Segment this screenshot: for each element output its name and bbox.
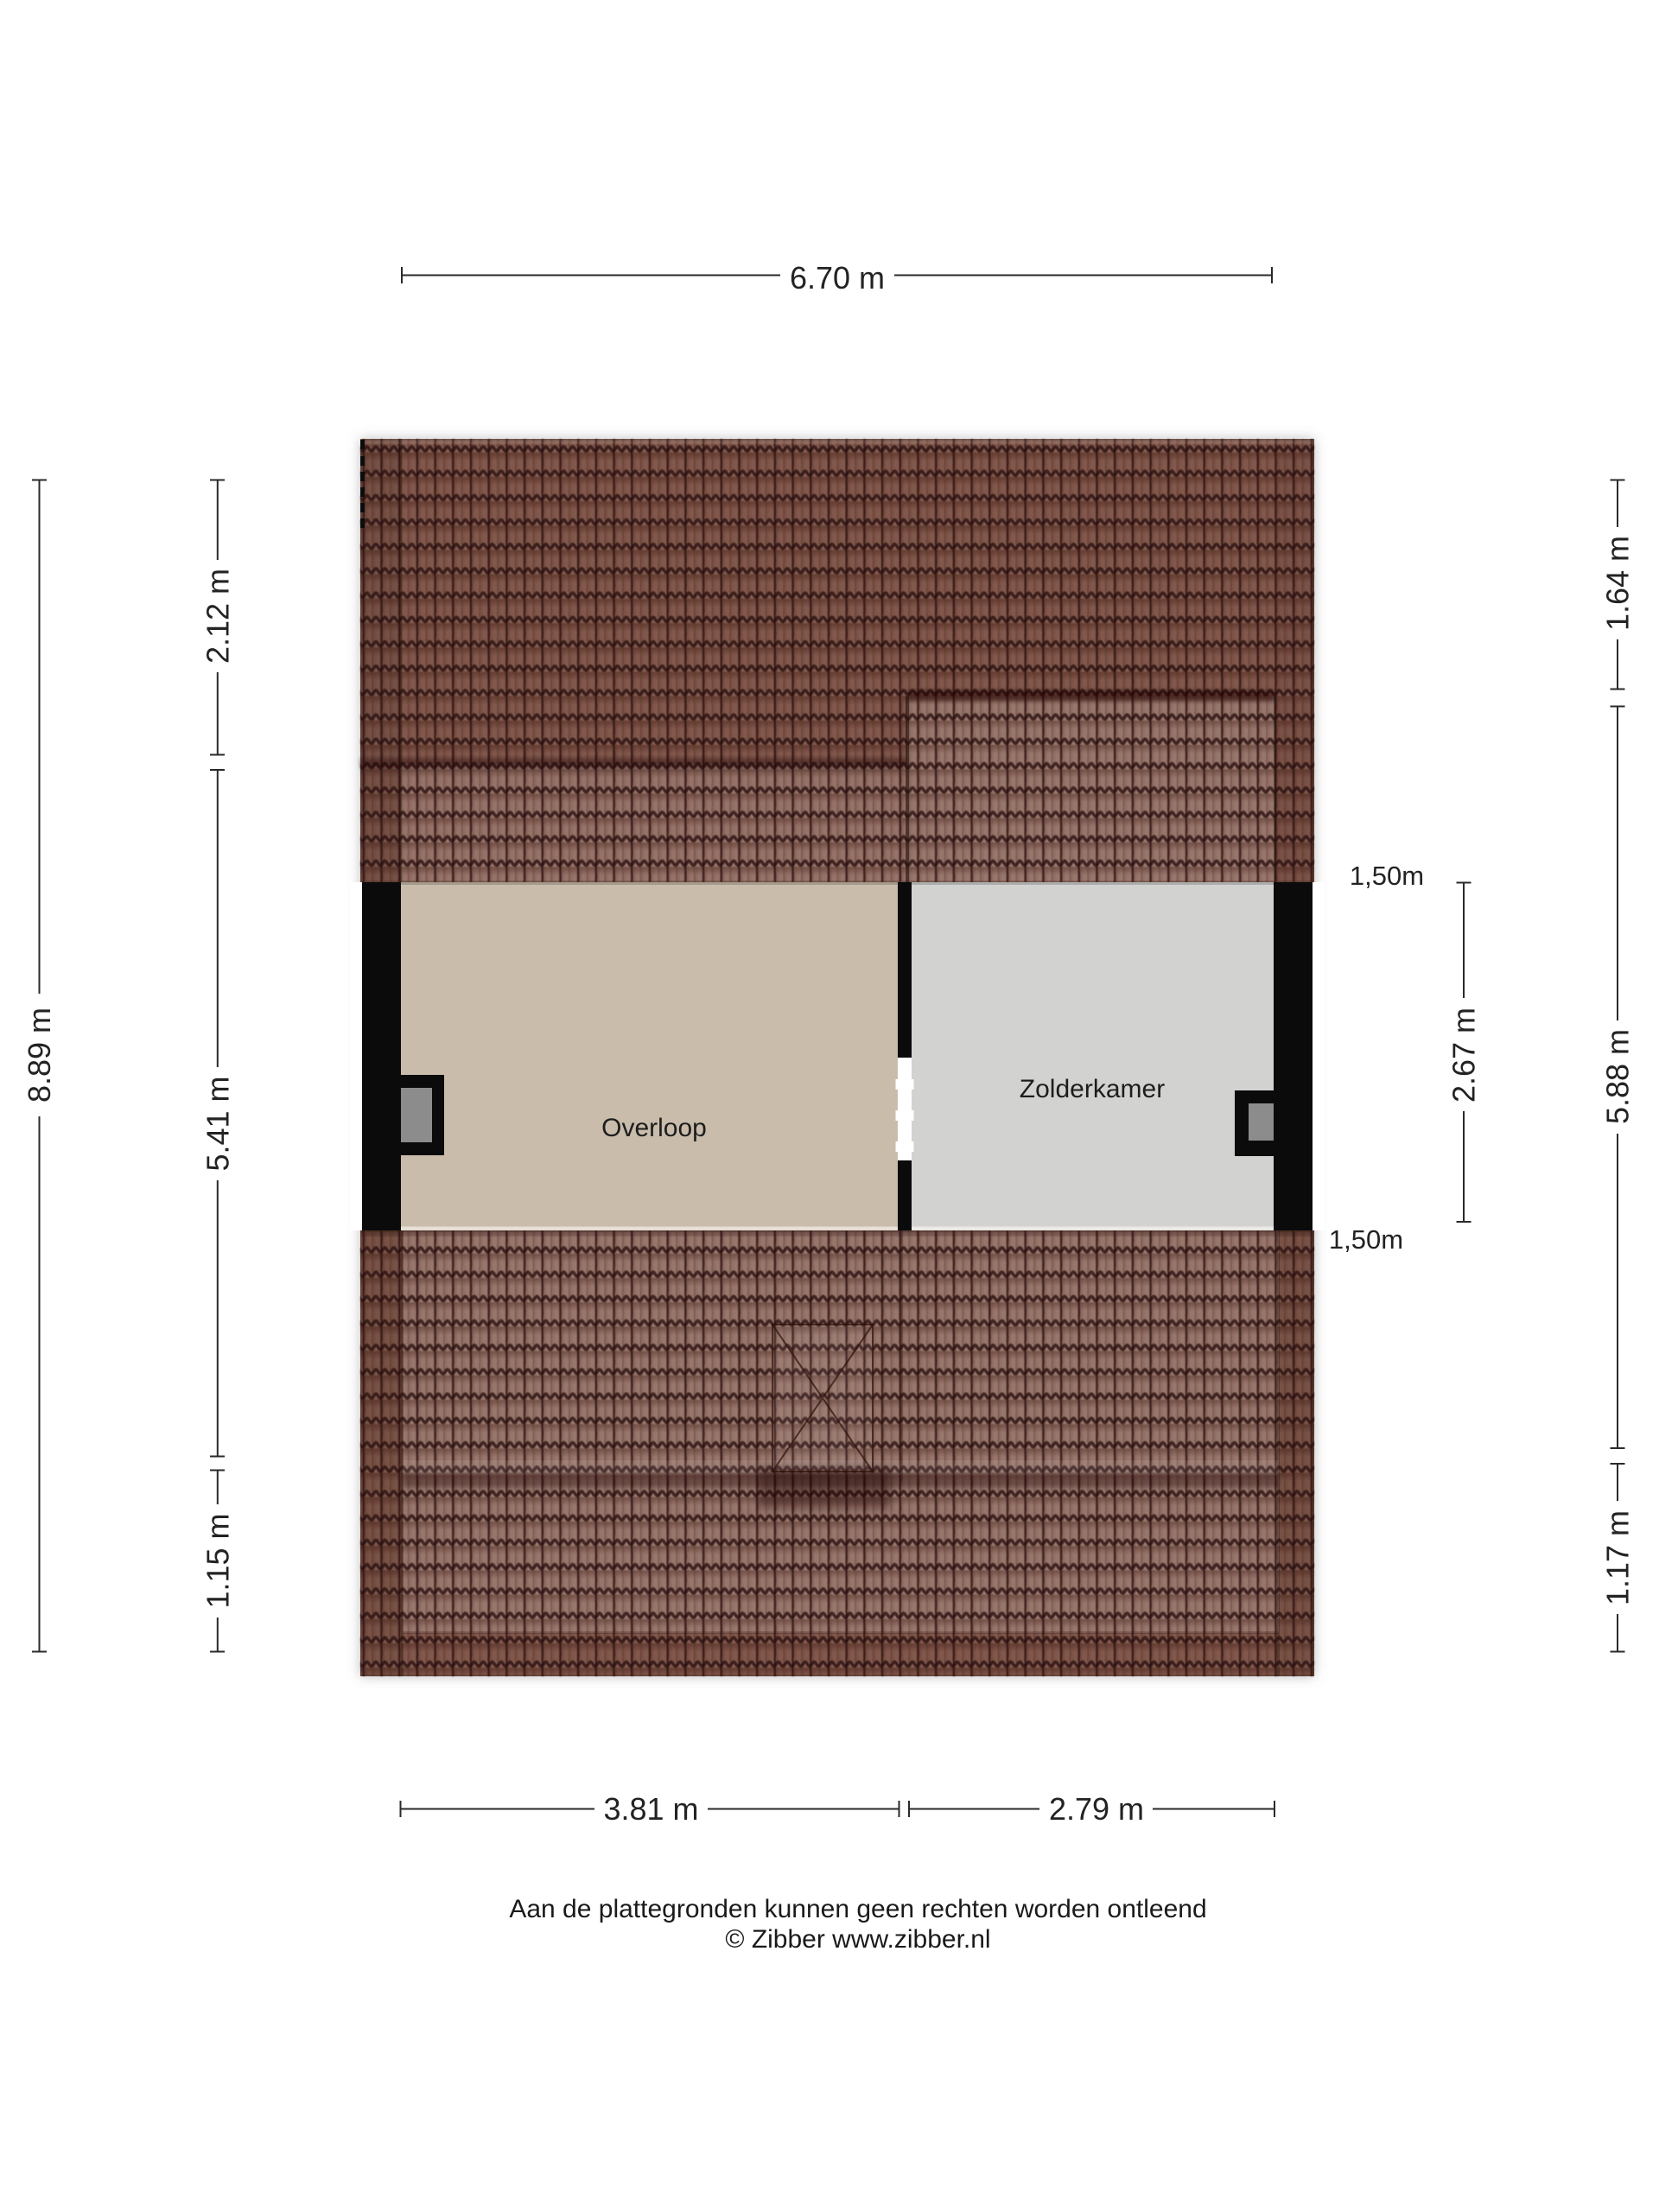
svg-text:2.67 m: 2.67 m (1446, 1007, 1482, 1103)
svg-text:6.70 m: 6.70 m (790, 260, 885, 296)
svg-text:Overloop: Overloop (601, 1114, 707, 1142)
svg-text:5.41 m: 5.41 m (200, 1076, 236, 1171)
svg-text:1,50m: 1,50m (1350, 861, 1424, 891)
svg-text:2.12 m: 2.12 m (200, 569, 236, 664)
svg-text:1.17 m: 1.17 m (1600, 1510, 1636, 1605)
svg-text:1.64 m: 1.64 m (1600, 536, 1636, 631)
svg-text:© Zibber www.zibber.nl: © Zibber www.zibber.nl (725, 1925, 990, 1954)
svg-text:1,50m: 1,50m (1329, 1224, 1403, 1255)
svg-text:1.15 m: 1.15 m (200, 1513, 236, 1608)
svg-text:Aan de plattegronden kunnen ge: Aan de plattegronden kunnen geen rechten… (509, 1895, 1206, 1923)
svg-text:Zolderkamer: Zolderkamer (1020, 1075, 1165, 1103)
svg-text:3.81 m: 3.81 m (603, 1791, 698, 1827)
svg-text:5.88 m: 5.88 m (1600, 1029, 1636, 1124)
svg-text:8.89 m: 8.89 m (22, 1007, 57, 1103)
svg-text:2.79 m: 2.79 m (1049, 1791, 1144, 1827)
